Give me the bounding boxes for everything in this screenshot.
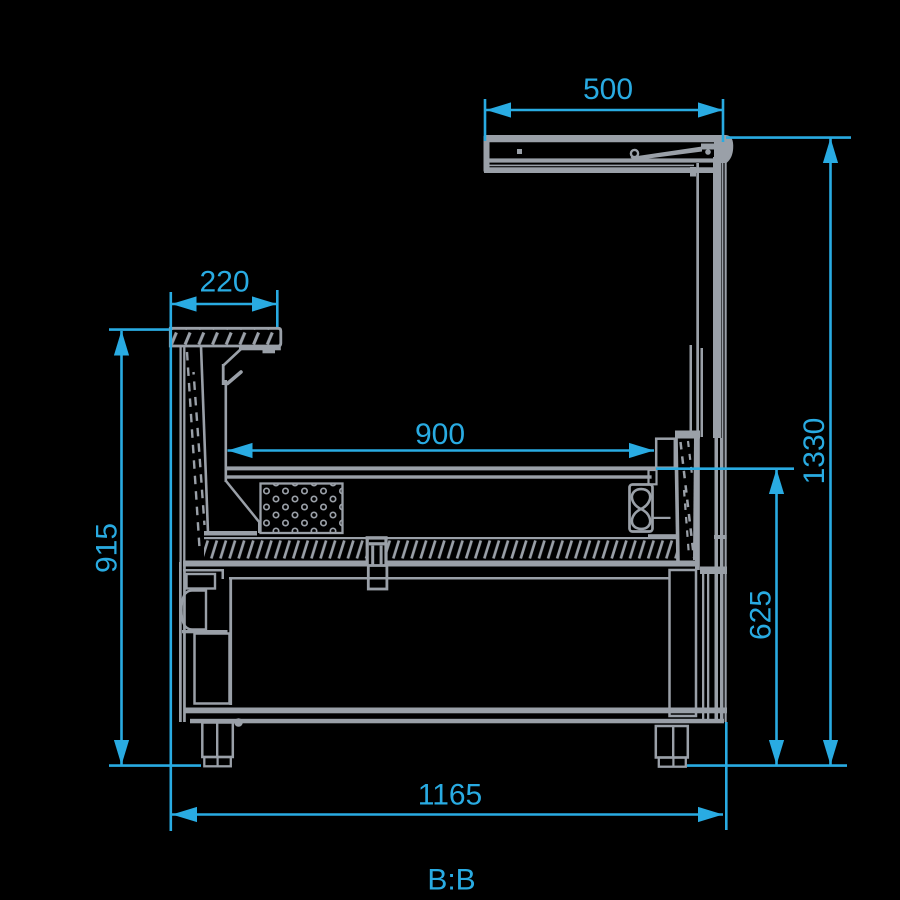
svg-text:900: 900: [415, 418, 465, 451]
svg-text:500: 500: [583, 73, 633, 106]
svg-text:1330: 1330: [798, 418, 831, 485]
svg-text:B:B: B:B: [427, 864, 475, 897]
svg-text:915: 915: [91, 523, 124, 573]
svg-text:625: 625: [745, 590, 778, 640]
svg-text:1165: 1165: [418, 779, 483, 812]
svg-text:220: 220: [199, 266, 249, 299]
